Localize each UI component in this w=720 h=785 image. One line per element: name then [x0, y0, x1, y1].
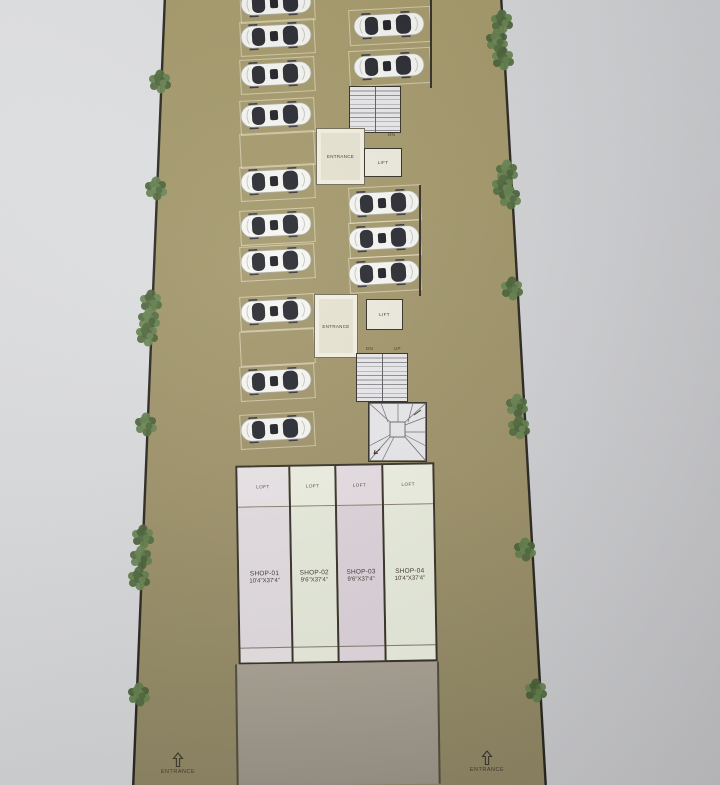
parked-car: [239, 366, 312, 396]
car-top-view-icon: [239, 366, 312, 396]
stair-divider: [382, 354, 383, 401]
car-top-view-icon: [347, 258, 420, 288]
up-arrow-icon: [172, 752, 184, 768]
shop-name: SHOP-04: [395, 567, 424, 575]
stair-up-label-lower: UP: [394, 346, 401, 351]
parked-car: [347, 223, 420, 253]
lift-lower: LIFT: [366, 299, 403, 330]
building-wall-right-top: [430, 0, 432, 88]
loft-label: LOFT: [353, 482, 367, 487]
entrance-room-upper: ENTRANCE: [317, 129, 364, 184]
parked-car: [239, 21, 312, 51]
shop-step: [387, 644, 436, 660]
car-top-view-icon: [239, 166, 312, 196]
parked-car: [239, 210, 312, 240]
loft-label: LOFT: [306, 483, 320, 488]
loft-cell: LOFT: [237, 467, 288, 508]
parked-car: [239, 166, 312, 196]
photo-background: UP DN ENTRANCE LIFT ENTRANCE LIFT DN UP: [0, 0, 720, 785]
loft-label: LOFT: [401, 482, 415, 487]
site-entrance-right: ENTRANCE: [455, 750, 519, 773]
car-top-view-icon: [347, 223, 420, 253]
shop-name: SHOP-03: [346, 568, 375, 576]
car-top-view-icon: [239, 59, 312, 89]
loft-label: LOFT: [256, 484, 270, 489]
left-column-parking-stall: [239, 328, 316, 367]
entrance-room-label: ENTRANCE: [322, 324, 349, 329]
parked-car: [239, 59, 312, 89]
winder-staircase: [368, 402, 427, 462]
up-arrow-icon: [481, 750, 493, 766]
parked-car: [239, 100, 312, 130]
stair-dn-label-lower: DN: [366, 346, 373, 351]
car-top-view-icon: [239, 414, 312, 444]
lift-upper: LIFT: [364, 148, 402, 177]
shop-column-1: LOFT SHOP-01 10'4"X37'4": [237, 467, 291, 663]
parked-car: [352, 10, 425, 40]
shop-room: SHOP-03 9'6"X37'4": [337, 505, 384, 646]
shops-block: LOFT SHOP-01 10'4"X37'4" LOFT SHOP-02 9'…: [235, 462, 437, 664]
car-top-view-icon: [352, 10, 425, 40]
entrance-room-lower: ENTRANCE: [315, 295, 357, 357]
car-top-view-icon: [239, 246, 312, 276]
lift-label: LIFT: [379, 312, 390, 317]
loft-cell: LOFT: [384, 464, 433, 505]
site-entrance-left: ENTRANCE: [146, 752, 210, 775]
shop-size: 9'6"X37'4": [301, 577, 328, 583]
shop-size: 10'4"X37'4": [395, 575, 426, 582]
shop-name: SHOP-02: [300, 569, 329, 577]
stair-dn-label-upper: DN: [388, 132, 395, 137]
shop-column-3: LOFT SHOP-03 9'6"X37'4": [335, 465, 385, 661]
staircase-lower: [356, 353, 408, 402]
shop-column-4: LOFT SHOP-04 10'4"X37'4": [382, 464, 436, 660]
shop-step: [240, 647, 291, 663]
shop-step: [293, 646, 338, 662]
winder-stair-icon: [368, 402, 427, 462]
car-top-view-icon: [239, 100, 312, 130]
site-entrance-label: ENTRANCE: [161, 769, 195, 775]
shop-room: SHOP-04 10'4"X37'4": [384, 504, 435, 645]
loft-cell: LOFT: [337, 465, 382, 506]
front-platform: [235, 662, 441, 785]
car-top-view-icon: [239, 210, 312, 240]
building-wall-right-mid: [419, 185, 421, 296]
parked-car: [239, 246, 312, 276]
shop-size: 10'4"X37'4": [249, 578, 280, 585]
shop-name: SHOP-01: [250, 570, 279, 578]
parked-car: [239, 296, 312, 326]
staircase-upper: [349, 86, 401, 133]
car-top-view-icon: [352, 51, 425, 81]
lift-label: LIFT: [378, 160, 389, 165]
shop-room: SHOP-02 9'6"X37'4": [291, 506, 338, 647]
stair-divider: [375, 87, 376, 132]
shop-column-2: LOFT SHOP-02 9'6"X37'4": [288, 466, 338, 662]
site-entrance-label: ENTRANCE: [470, 767, 504, 773]
parked-car: [352, 51, 425, 81]
loft-cell: LOFT: [290, 466, 335, 507]
entrance-room-label: ENTRANCE: [327, 154, 354, 159]
car-top-view-icon: [239, 21, 312, 51]
parked-car: [239, 414, 312, 444]
car-top-view-icon: [239, 296, 312, 326]
shop-size: 9'6"X37'4": [347, 576, 374, 582]
car-top-view-icon: [347, 188, 420, 218]
parked-car: [347, 258, 420, 288]
shop-room: SHOP-01 10'4"X37'4": [238, 507, 291, 648]
shop-step: [340, 645, 385, 661]
parked-car: [347, 188, 420, 218]
